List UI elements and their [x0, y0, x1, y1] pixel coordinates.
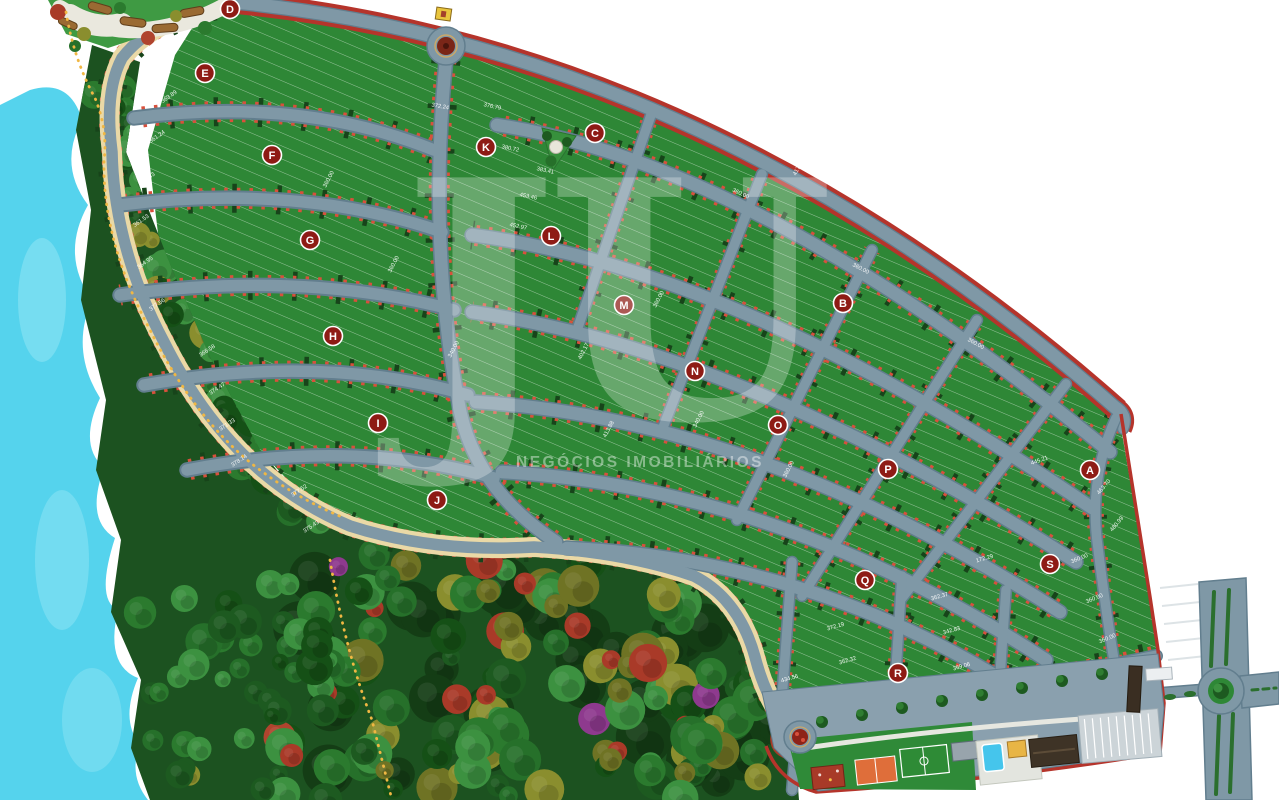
tree: [171, 585, 198, 612]
tree: [681, 722, 723, 764]
roundabout-west: [784, 721, 816, 753]
tree: [375, 761, 393, 779]
entrance-gate-tower: [1127, 666, 1142, 713]
tree: [230, 658, 250, 678]
watermark: JU NEGÓCIOS IMOBILIÁRIOS: [376, 108, 830, 496]
gate-canopy: [1146, 667, 1173, 681]
tree: [277, 573, 299, 595]
playground: [811, 764, 845, 789]
tree: [695, 658, 726, 689]
block-badge-A: A: [1081, 461, 1100, 480]
tree: [142, 730, 163, 751]
roundabout-entrance: [1198, 668, 1244, 714]
tree: [564, 613, 590, 639]
block-badge-Q: Q: [856, 571, 875, 590]
parking-lot: [1078, 709, 1162, 764]
tree: [558, 565, 600, 607]
tree: [548, 665, 585, 702]
tree: [386, 586, 416, 616]
tree: [178, 649, 210, 681]
watermark-monogram: JU: [376, 108, 830, 496]
tree: [307, 694, 339, 726]
tree: [124, 596, 156, 628]
roundabout-top: [427, 27, 465, 65]
tree: [744, 763, 771, 790]
tree: [208, 610, 241, 643]
svg-text:R: R: [894, 668, 902, 680]
block-badge-R: R: [889, 664, 908, 683]
clubhouse-building-main: [1029, 735, 1080, 768]
svg-text:F: F: [269, 150, 276, 162]
tree: [599, 748, 622, 771]
tree: [643, 686, 668, 711]
tree: [301, 630, 333, 662]
tree: [608, 678, 633, 703]
tree: [383, 779, 403, 799]
swimming-pool: [982, 743, 1005, 772]
tree: [442, 684, 472, 714]
svg-text:S: S: [1046, 559, 1053, 571]
tree: [166, 760, 194, 788]
water-highlight: [35, 490, 89, 630]
svg-text:I: I: [376, 418, 379, 430]
tree: [543, 629, 569, 655]
svg-text:E: E: [201, 68, 208, 80]
svg-text:B: B: [839, 298, 847, 310]
tree: [629, 644, 667, 682]
watermark-subtitle: NEGÓCIOS IMOBILIÁRIOS: [516, 453, 764, 471]
svg-text:D: D: [226, 4, 234, 16]
tree: [634, 755, 666, 787]
tree: [375, 566, 400, 591]
tree: [280, 744, 303, 767]
block-badge-B: B: [834, 294, 853, 313]
water-highlight: [18, 238, 66, 362]
svg-text:G: G: [306, 235, 315, 247]
block-badge-S: S: [1041, 555, 1060, 574]
tree: [422, 739, 452, 769]
tree: [264, 708, 280, 724]
tree: [647, 577, 681, 611]
clubhouse-building-yellow: [1007, 740, 1027, 758]
tree: [514, 573, 536, 595]
block-badge-H: H: [324, 327, 343, 346]
block-badge-F: F: [263, 146, 282, 165]
tree: [314, 749, 351, 786]
tree: [476, 685, 496, 705]
tree: [351, 738, 378, 765]
soccer-field: [900, 745, 950, 778]
block-badge-G: G: [301, 231, 320, 250]
tree: [476, 579, 500, 603]
avenue-east-arm: [1240, 672, 1279, 708]
tree: [234, 728, 255, 749]
water-highlight: [62, 668, 122, 772]
tree: [430, 618, 466, 654]
svg-text:P: P: [884, 464, 891, 476]
tree: [373, 689, 410, 726]
block-badge-E: E: [196, 64, 215, 83]
block-badge-P: P: [879, 460, 898, 479]
park-plaza: [70, 15, 122, 26]
sports-court-orange: [855, 756, 897, 785]
tree: [215, 671, 231, 687]
svg-text:A: A: [1086, 465, 1094, 477]
gate-icon: [435, 7, 452, 21]
club-building-small: [951, 741, 978, 762]
svg-text:J: J: [434, 495, 440, 507]
tree: [187, 737, 211, 761]
tree: [494, 612, 523, 641]
tree: [345, 577, 373, 605]
block-badge-D: D: [221, 0, 240, 19]
tree: [455, 729, 490, 764]
site-plan-map: A B C D E F G H I J K L M N O P Q R S 36…: [0, 0, 1279, 800]
master-plan-screenshot: A B C D E F G H I J K L M N O P Q R S 36…: [0, 0, 1279, 800]
tree: [149, 683, 168, 702]
tree: [740, 739, 768, 767]
svg-text:Q: Q: [861, 575, 870, 587]
block-badge-I: I: [369, 414, 388, 433]
svg-text:H: H: [329, 331, 337, 343]
